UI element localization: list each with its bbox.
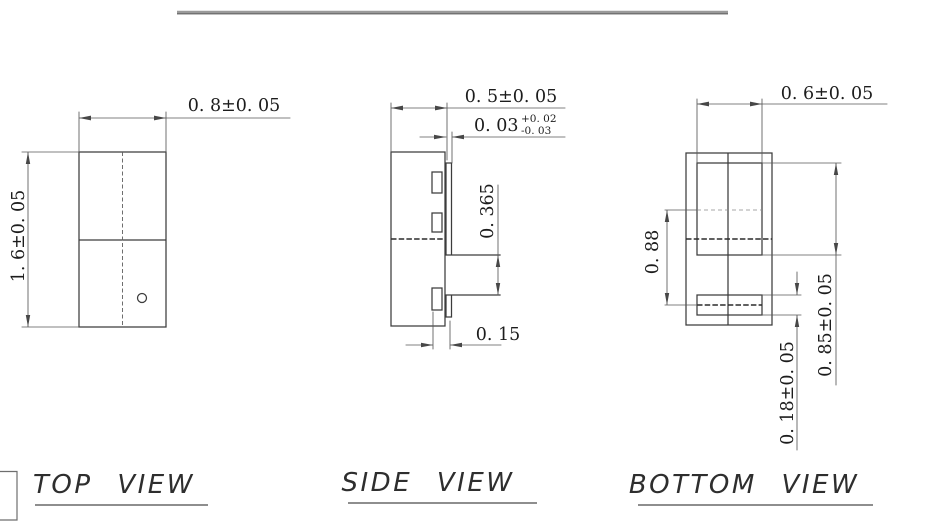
dim-side-lead-tol-plus: +0. 02: [521, 113, 557, 125]
drawing-sheet: 0. 8±0. 05 1. 6±0. 05 TOP VIEW 0. 5±0. 0…: [0, 0, 930, 530]
dim-bottom-pitch: 0. 88: [643, 210, 697, 305]
dim-bottom-pitch-text: 0. 88: [643, 230, 663, 275]
dim-side-foot: 0. 15: [406, 312, 520, 349]
engineering-drawing: 0. 8±0. 05 1. 6±0. 05 TOP VIEW 0. 5±0. 0…: [0, 0, 930, 530]
bottom-view-label-group: BOTTOM VIEW: [629, 470, 873, 505]
dim-top-height-lines: [22, 152, 79, 327]
dim-top-width-text: 0. 8±0. 05: [188, 96, 281, 116]
dim-bottom-pitch-lines: [665, 210, 697, 305]
top-view-label: TOP VIEW: [33, 470, 195, 500]
bottom-view: 0. 6±0. 05 0. 88 0. 85±0. 05 0. 18±0. 05…: [629, 84, 887, 505]
dim-side-lead-tol-minus: -0. 03: [521, 125, 551, 137]
side-view-label-group: SIDE VIEW: [342, 468, 537, 503]
title-block-corner: [0, 472, 17, 521]
dim-side-foot-arrows: [421, 343, 462, 347]
dim-side-width-text: 0. 5±0. 05: [465, 87, 558, 107]
dim-bottom-pad-width: 0. 6±0. 05: [697, 84, 887, 163]
top-view: 0. 8±0. 05 1. 6±0. 05 TOP VIEW: [9, 96, 290, 505]
dim-side-gap-text: 0. 365: [478, 183, 498, 239]
dim-top-height: 1. 6±0. 05: [9, 152, 79, 327]
dim-bottom-pad-length: 0. 85±0. 05: [762, 163, 841, 385]
dim-bottom-end-pad: 0. 18±0. 05: [762, 272, 801, 450]
orientation-mark-circle: [138, 294, 147, 303]
dim-bottom-endpad-text: 0. 18±0. 05: [778, 341, 798, 445]
dim-bottom-endpad-arrows: [795, 283, 799, 327]
dim-side-lead-text: 0. 03: [474, 116, 519, 136]
dim-bottom-length-text: 0. 85±0. 05: [816, 273, 836, 377]
dim-side-foot-text: 0. 15: [476, 325, 521, 345]
sheet-frame: [0, 12, 728, 520]
side-view-label: SIDE VIEW: [342, 468, 515, 498]
dim-side-lead-thickness: 0. 03 +0. 02 -0. 03: [420, 113, 565, 163]
dim-top-width: 0. 8±0. 05: [79, 96, 290, 152]
dim-bottom-width-text: 0. 6±0. 05: [781, 84, 874, 104]
dim-side-lead-gap: 0. 365: [478, 183, 500, 295]
side-view: 0. 5±0. 05 0. 03 +0. 02 -0. 03 0. 365 0.…: [342, 87, 565, 503]
dim-top-height-text: 1. 6±0. 05: [9, 190, 29, 283]
dim-top-width-lines: [79, 112, 290, 152]
top-view-label-group: TOP VIEW: [33, 470, 208, 505]
dim-side-lead-arrows: [434, 135, 464, 139]
bottom-view-label: BOTTOM VIEW: [629, 470, 859, 500]
